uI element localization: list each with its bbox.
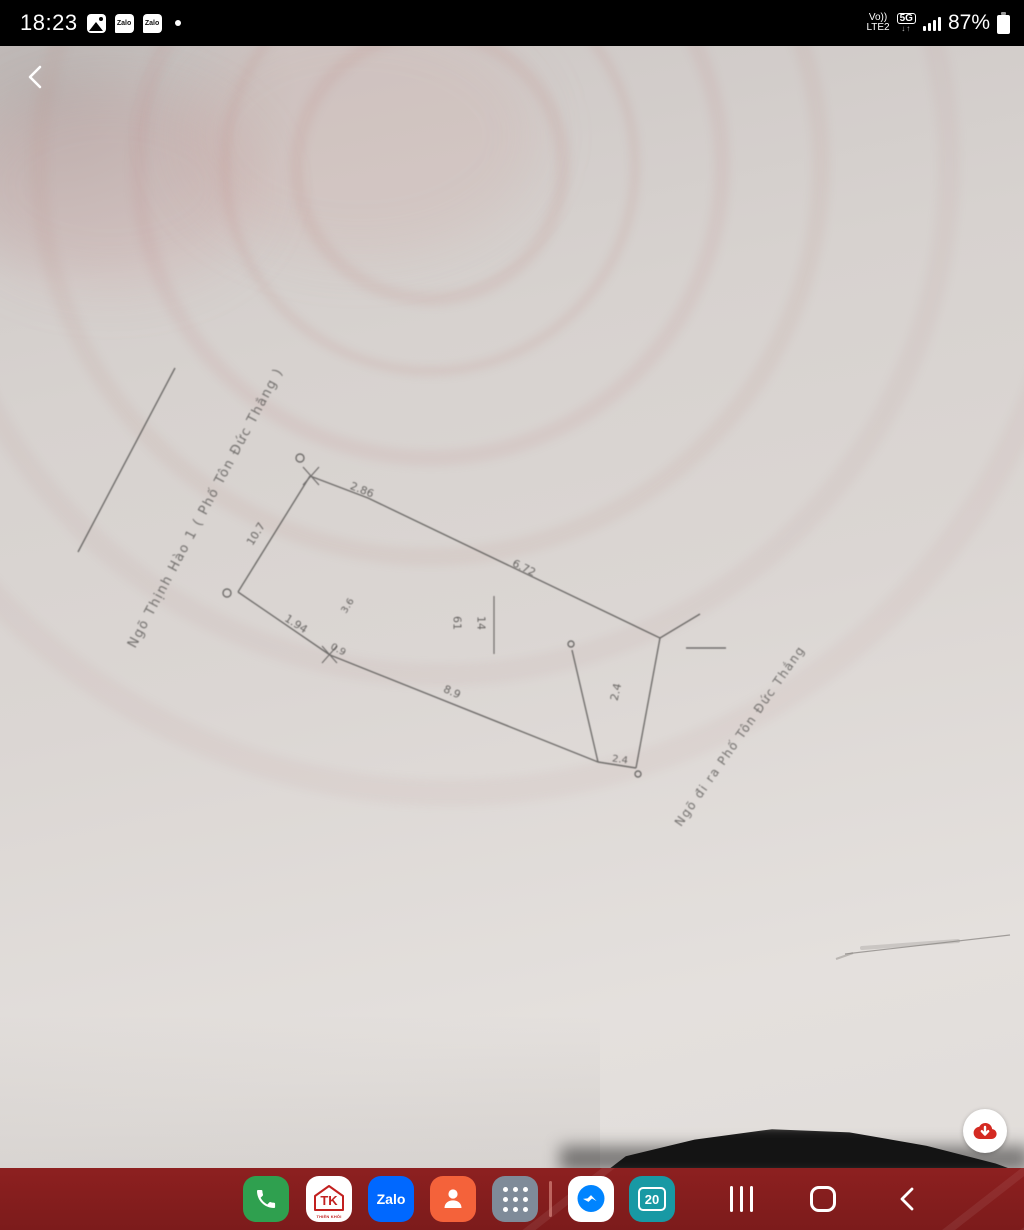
messenger-icon	[574, 1182, 608, 1216]
more-notifications-dot-icon	[175, 20, 181, 26]
tail-divider-line	[572, 650, 598, 762]
status-bar: 18:23 Zalo Zalo Vo)) LTE2 5G ↓↑ 87%	[0, 0, 1024, 46]
zalo-notification-icon: Zalo	[143, 14, 162, 33]
dim-label: 2.4	[611, 753, 628, 766]
messenger-app-icon[interactable]	[568, 1176, 614, 1222]
zalo-app-icon[interactable]: Zalo	[368, 1176, 414, 1222]
tail-right-edge	[636, 638, 660, 768]
corner-circle	[296, 454, 304, 462]
plot-top-edge	[310, 476, 660, 638]
network-5g-badge: 5G	[897, 13, 916, 24]
zalo-notification-icon: Zalo	[115, 14, 134, 33]
calendar-app-icon[interactable]: 20	[629, 1176, 675, 1222]
parcel-area-label: 14	[475, 616, 488, 630]
road-line-left	[78, 368, 175, 552]
thien-khoi-app-icon[interactable]: TK THIÊN KHÔI	[306, 1176, 352, 1222]
calendar-day: 20	[638, 1187, 666, 1211]
corner-extension-line	[660, 614, 700, 638]
photo-viewer: Ngõ Thịnh Hào 1 ( Phố Tôn Đức Thắng ) Ng…	[0, 46, 1024, 1168]
back-button[interactable]	[884, 1176, 930, 1222]
app-drawer-icon[interactable]	[492, 1176, 538, 1222]
data-arrows-icon: ↓↑	[901, 24, 911, 33]
person-icon	[440, 1186, 466, 1212]
download-button[interactable]	[963, 1109, 1007, 1153]
plot-bottom-edge	[330, 655, 598, 762]
clock: 18:23	[20, 10, 78, 36]
battery-percent: 87%	[948, 11, 990, 35]
phone-screen: 18:23 Zalo Zalo Vo)) LTE2 5G ↓↑ 87%	[0, 0, 1024, 1230]
corner-circle	[635, 771, 641, 777]
battery-icon	[997, 12, 1010, 34]
network-5g-icon: 5G ↓↑	[897, 13, 916, 33]
tk-app-label: THIÊN KHÔI	[306, 1214, 352, 1219]
zalo-app-label: Zalo	[377, 1191, 406, 1207]
recents-button[interactable]	[718, 1176, 764, 1222]
grid-icon	[503, 1187, 528, 1212]
phone-app-icon[interactable]	[243, 1176, 289, 1222]
contacts-app-icon[interactable]	[430, 1176, 476, 1222]
recents-icon	[730, 1186, 753, 1212]
faint-scribble-line	[836, 935, 1010, 959]
dock-divider	[549, 1181, 552, 1217]
volte-indicator: Vo)) LTE2	[866, 13, 889, 33]
home-button[interactable]	[800, 1176, 846, 1222]
navigation-bar: TK THIÊN KHÔI Zalo	[0, 1168, 1024, 1230]
signal-strength-icon	[923, 16, 941, 31]
cloud-download-icon	[972, 1121, 998, 1141]
corner-cross-tick	[303, 467, 319, 485]
corner-circle	[223, 589, 231, 597]
svg-text:TK: TK	[320, 1193, 338, 1208]
tk-house-icon: TK	[312, 1184, 346, 1214]
gallery-notification-icon	[87, 14, 106, 33]
chevron-left-icon	[898, 1186, 916, 1212]
status-bar-left: 18:23 Zalo Zalo	[0, 10, 181, 36]
viewer-back-button[interactable]	[18, 60, 52, 94]
volte-bottom-label: LTE2	[866, 23, 889, 33]
phone-handset-icon	[254, 1187, 278, 1211]
home-icon	[810, 1186, 836, 1212]
corner-circle	[568, 641, 574, 647]
chevron-left-icon	[25, 64, 45, 90]
parcel-number-label: 61	[451, 616, 464, 630]
status-bar-right: Vo)) LTE2 5G ↓↑ 87%	[866, 11, 1024, 35]
